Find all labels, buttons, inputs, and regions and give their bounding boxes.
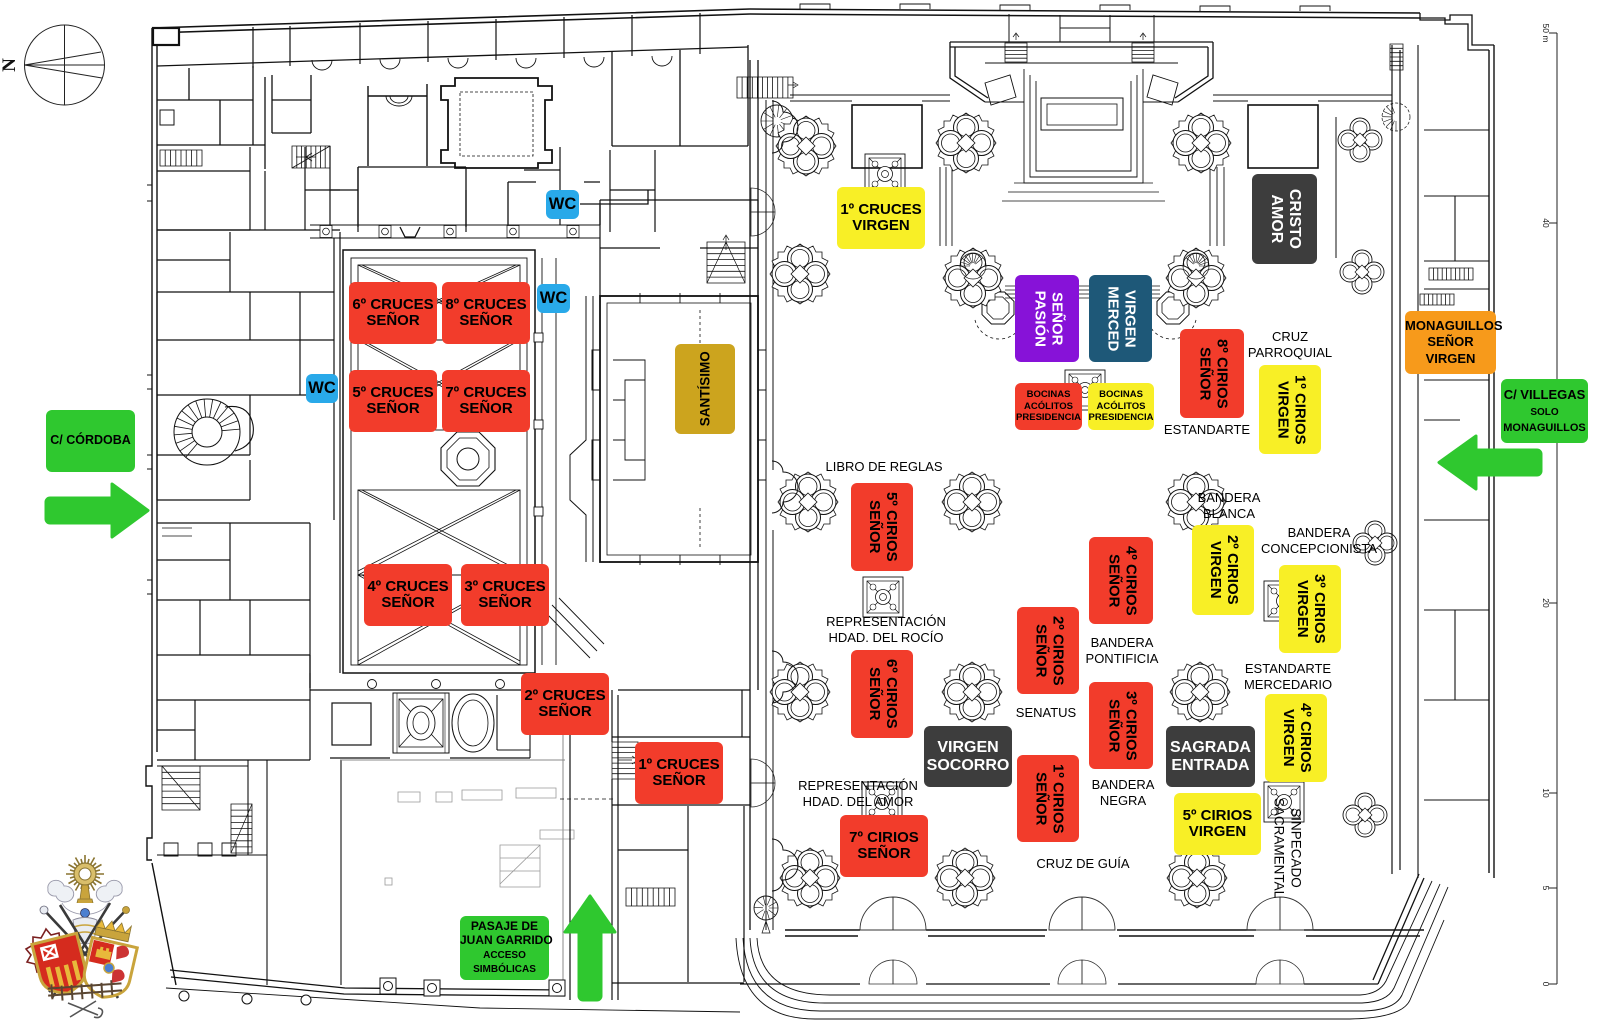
svg-text:40: 40: [1541, 218, 1551, 228]
svg-text:20: 20: [1541, 598, 1551, 608]
svg-text:5: 5: [1541, 886, 1551, 891]
svg-text:50 m: 50 m: [1541, 24, 1551, 43]
svg-text:10: 10: [1541, 788, 1551, 798]
svg-text:0: 0: [1541, 982, 1551, 987]
svg-text:N: N: [0, 58, 20, 72]
